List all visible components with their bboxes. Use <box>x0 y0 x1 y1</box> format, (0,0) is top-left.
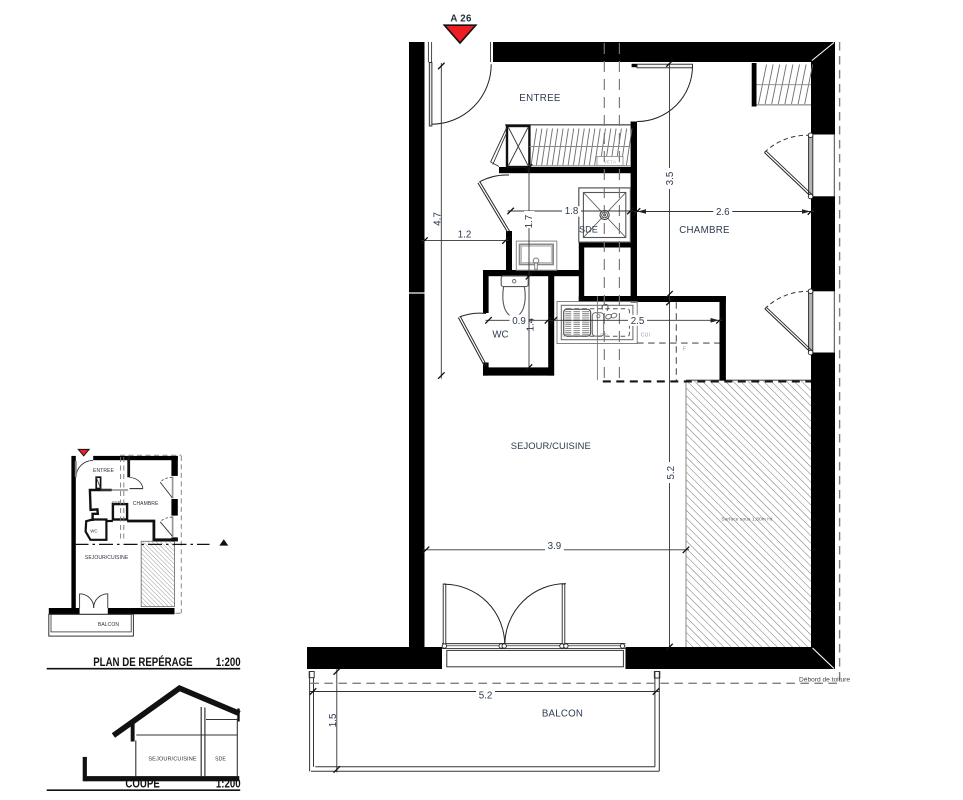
svg-text:1:200: 1:200 <box>216 778 241 791</box>
svg-text:1.8: 1.8 <box>565 206 579 217</box>
svg-text:2.6: 2.6 <box>716 207 730 218</box>
svg-text:Surface sous 1,80m Ht: Surface sous 1,80m Ht <box>721 517 772 523</box>
svg-text:1.5: 1.5 <box>328 713 339 727</box>
svg-text:ENTREE: ENTREE <box>93 468 114 474</box>
svg-text:VETA: VETA <box>604 160 617 165</box>
svg-text:PLAN DE REPÉRAGE: PLAN DE REPÉRAGE <box>93 655 192 669</box>
svg-text:SDE: SDE <box>579 225 598 235</box>
svg-text:SDE: SDE <box>215 757 226 763</box>
svg-text:5.2: 5.2 <box>479 690 493 701</box>
svg-text:3.9: 3.9 <box>548 541 562 552</box>
svg-text:2.5: 2.5 <box>631 316 645 327</box>
svg-text:BALCON: BALCON <box>542 709 583 720</box>
svg-text:3.5: 3.5 <box>665 171 676 185</box>
svg-text:CHAMBRE: CHAMBRE <box>679 225 730 236</box>
svg-text:WC: WC <box>492 330 508 341</box>
svg-text:5.2: 5.2 <box>666 466 677 480</box>
svg-text:ENTREE: ENTREE <box>519 93 561 104</box>
svg-text:WC: WC <box>90 528 97 533</box>
svg-text:CHAMBRE: CHAMBRE <box>133 501 159 507</box>
svg-text:COUPE: COUPE <box>125 778 159 791</box>
svg-text:BALCON: BALCON <box>98 622 119 628</box>
svg-text:SEJOUR/CUISINE: SEJOUR/CUISINE <box>148 757 197 763</box>
svg-text:4.7: 4.7 <box>432 212 443 226</box>
svg-text:1.2: 1.2 <box>458 229 472 240</box>
svg-text:A 26: A 26 <box>450 14 472 25</box>
svg-text:SDE: SDE <box>111 500 120 505</box>
svg-text:1.7: 1.7 <box>524 215 535 229</box>
svg-text:SEJOUR/CUISINE: SEJOUR/CUISINE <box>511 440 591 451</box>
svg-text:0.9: 0.9 <box>512 316 526 327</box>
svg-text:1:200: 1:200 <box>216 656 241 669</box>
svg-text:Débord de toiture: Débord de toiture <box>799 677 850 684</box>
svg-text:CUI: CUI <box>641 333 651 339</box>
svg-text:SEJOUR/CUISINE: SEJOUR/CUISINE <box>85 555 129 561</box>
